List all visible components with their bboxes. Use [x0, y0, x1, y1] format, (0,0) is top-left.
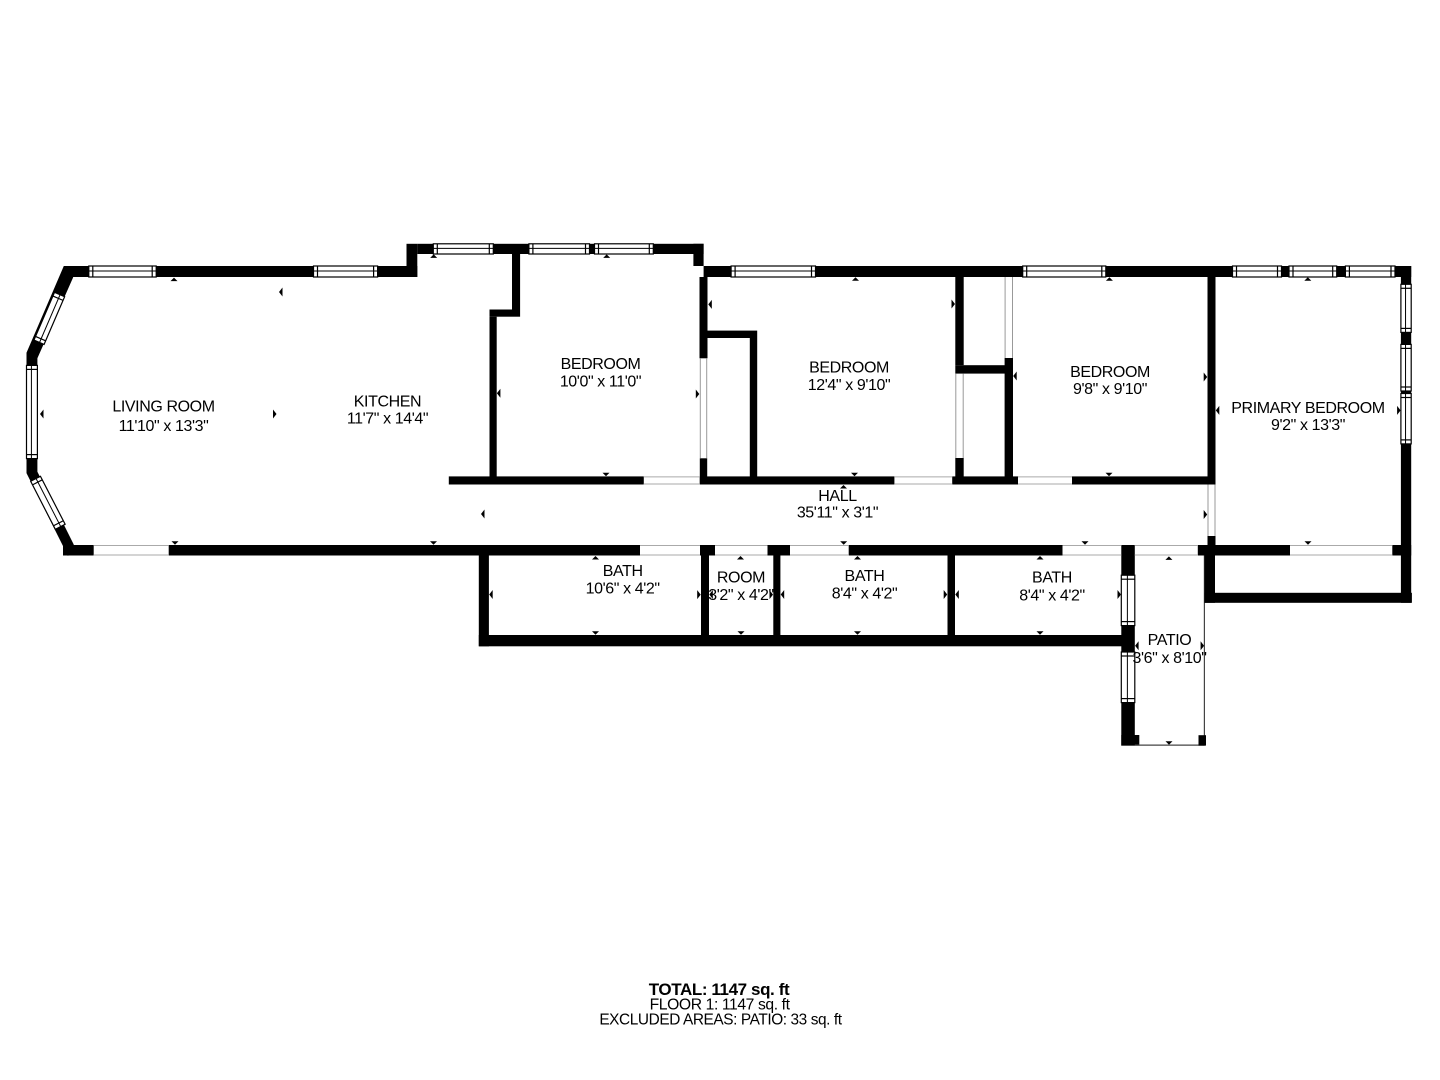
svg-text:BATH: BATH — [845, 568, 885, 585]
svg-text:9'2" x 13'3": 9'2" x 13'3" — [1271, 417, 1345, 434]
svg-text:3'6" x 8'10": 3'6" x 8'10" — [1132, 650, 1206, 667]
svg-text:BATH: BATH — [1032, 570, 1072, 587]
svg-text:ROOM: ROOM — [717, 570, 765, 587]
svg-text:BEDROOM: BEDROOM — [561, 356, 641, 373]
svg-text:11'10" x 13'3": 11'10" x 13'3" — [119, 418, 209, 435]
svg-text:KITCHEN: KITCHEN — [354, 394, 421, 411]
svg-text:10'0" x 11'0": 10'0" x 11'0" — [560, 374, 641, 391]
svg-text:PRIMARY BEDROOM: PRIMARY BEDROOM — [1231, 400, 1385, 417]
svg-text:BEDROOM: BEDROOM — [1070, 364, 1150, 381]
svg-text:35'11" x 3'1": 35'11" x 3'1" — [797, 505, 878, 522]
svg-text:EXCLUDED AREAS: PATIO: 33 sq.: EXCLUDED AREAS: PATIO: 33 sq. ft — [599, 1012, 842, 1029]
svg-text:3'2" x 4'2": 3'2" x 4'2" — [708, 587, 774, 604]
svg-text:10'6" x 4'2": 10'6" x 4'2" — [586, 581, 660, 598]
svg-text:LIVING ROOM: LIVING ROOM — [112, 399, 214, 416]
svg-text:BATH: BATH — [603, 563, 643, 580]
svg-text:9'8" x 9'10": 9'8" x 9'10" — [1073, 381, 1147, 398]
svg-text:BEDROOM: BEDROOM — [809, 360, 889, 377]
svg-text:PATIO: PATIO — [1148, 632, 1192, 649]
svg-text:11'7" x 14'4": 11'7" x 14'4" — [347, 411, 428, 428]
svg-text:12'4" x 9'10": 12'4" x 9'10" — [808, 377, 891, 394]
svg-text:HALL: HALL — [818, 488, 857, 505]
svg-text:8'4" x 4'2": 8'4" x 4'2" — [832, 586, 898, 603]
svg-text:8'4" x 4'2": 8'4" x 4'2" — [1019, 588, 1085, 605]
